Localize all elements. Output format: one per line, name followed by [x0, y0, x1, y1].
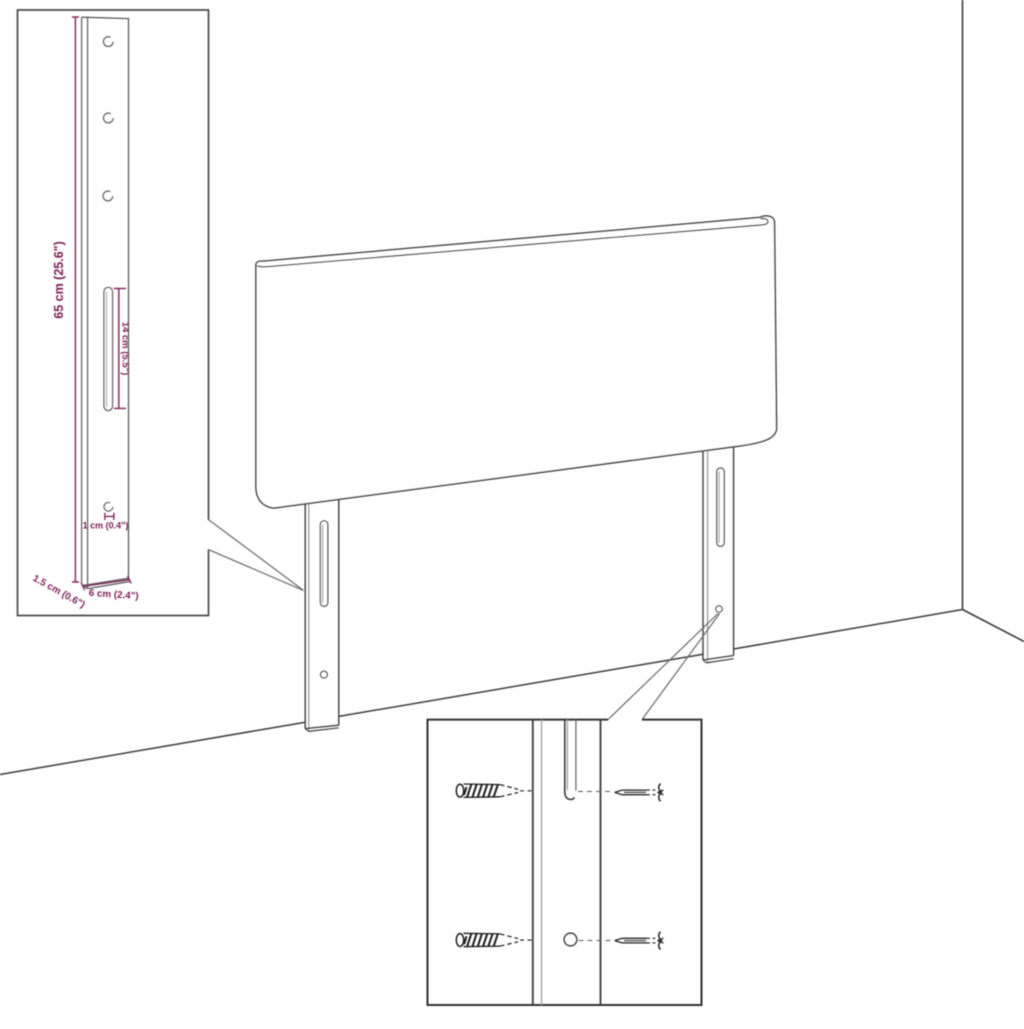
svg-text:65 cm (25.6"): 65 cm (25.6") — [52, 241, 66, 319]
svg-text:1 cm (0.4"): 1 cm (0.4") — [83, 521, 129, 531]
svg-text:14 cm (5.5"): 14 cm (5.5") — [120, 322, 131, 376]
